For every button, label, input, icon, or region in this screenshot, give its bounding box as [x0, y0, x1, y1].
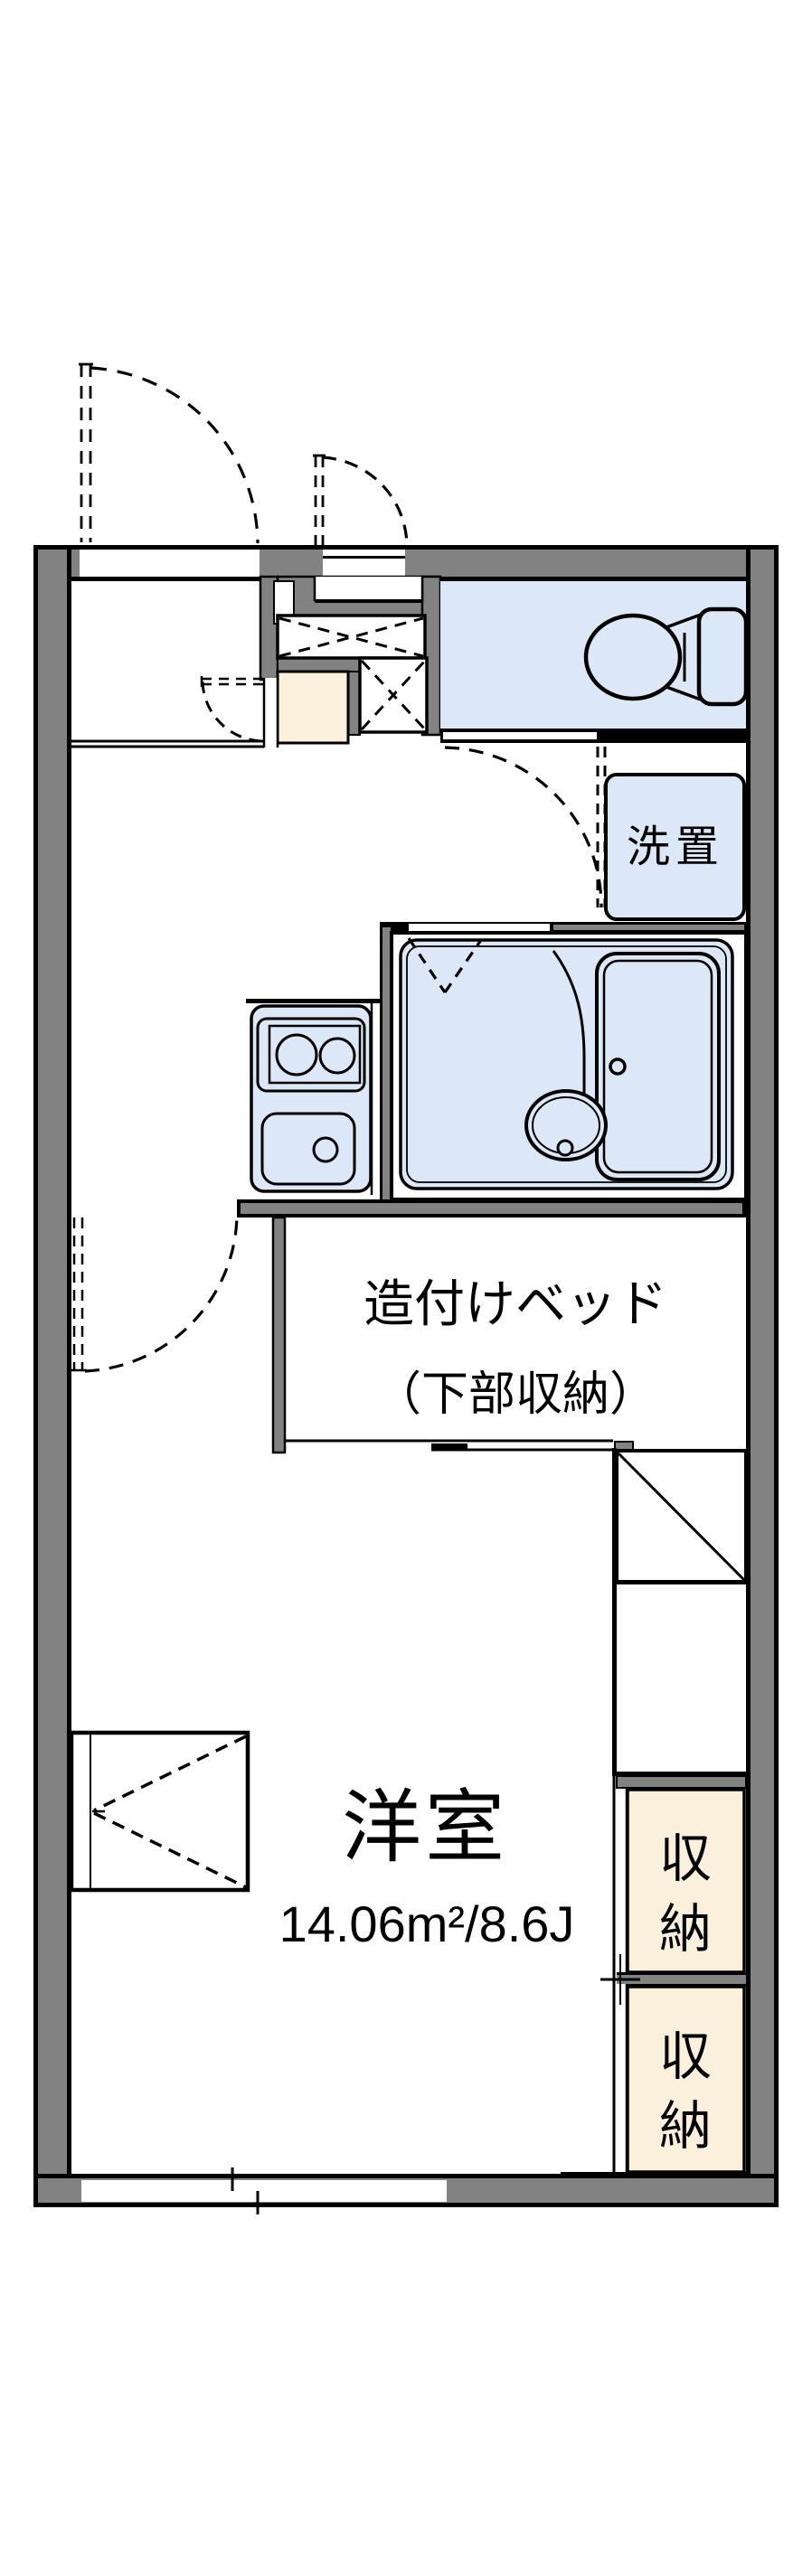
- bay-cabinet: [71, 1733, 248, 1890]
- bathroom-door-opening: [409, 924, 550, 931]
- closet-lower-label-char2: 納: [659, 2097, 712, 2156]
- floor-plan-drawing: 洗置: [0, 0, 812, 2576]
- washer-place-label: 洗置: [627, 823, 724, 871]
- entrance-opening: [80, 550, 260, 577]
- bed-label-line1: 造付けベッド: [364, 1275, 667, 1332]
- bath-drain: [558, 1141, 572, 1155]
- genkan-doorway: [264, 678, 278, 747]
- bed-left-wall: [273, 1217, 285, 1453]
- bathroom: [380, 922, 746, 1214]
- stove-unit: [258, 1019, 364, 1091]
- service-door-swing: [313, 456, 407, 546]
- kitchen-sink: [262, 1114, 354, 1184]
- entrance-door-swing: [79, 364, 258, 543]
- service-door-opening: [323, 550, 405, 577]
- toilet-door-opening: [443, 732, 597, 739]
- genkan-floor: [278, 672, 348, 743]
- bed-label-line2: （下部収納）: [374, 1368, 656, 1421]
- western-room-area-label: 14.06m²/8.6J: [279, 1895, 575, 1952]
- bottom-window: [81, 2180, 447, 2202]
- closet-upper-label-char2: 納: [659, 1900, 712, 1959]
- floor-plan-page: 洗置: [0, 0, 812, 2576]
- western-room-label: 洋室: [342, 1782, 508, 1872]
- closet-upper-label-char1: 収: [659, 1829, 712, 1888]
- service-alcove: [315, 577, 422, 601]
- open-shelf-space: [617, 1584, 746, 1773]
- bathtub-knob: [610, 1059, 625, 1074]
- kitchen: [246, 999, 382, 1195]
- closet-lower-label-char1: 収: [659, 2027, 712, 2086]
